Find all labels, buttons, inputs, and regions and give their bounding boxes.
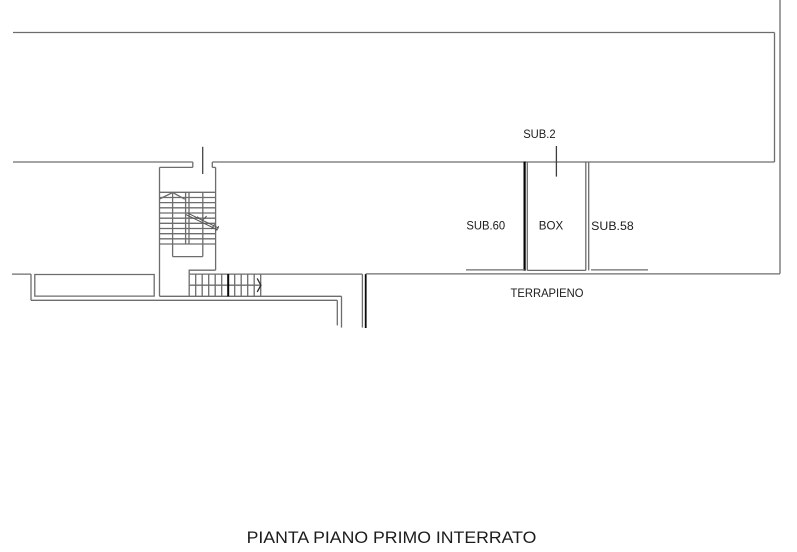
svg-text:SUB.2: SUB.2	[523, 127, 556, 141]
svg-text:PIANTA PIANO PRIMO INTERRATO: PIANTA PIANO PRIMO INTERRATO	[247, 528, 537, 547]
svg-text:TERRAPIENO: TERRAPIENO	[511, 286, 584, 300]
svg-text:BOX: BOX	[539, 219, 563, 233]
svg-text:SUB.60: SUB.60	[466, 218, 505, 232]
svg-text:SUB.58: SUB.58	[591, 219, 634, 233]
